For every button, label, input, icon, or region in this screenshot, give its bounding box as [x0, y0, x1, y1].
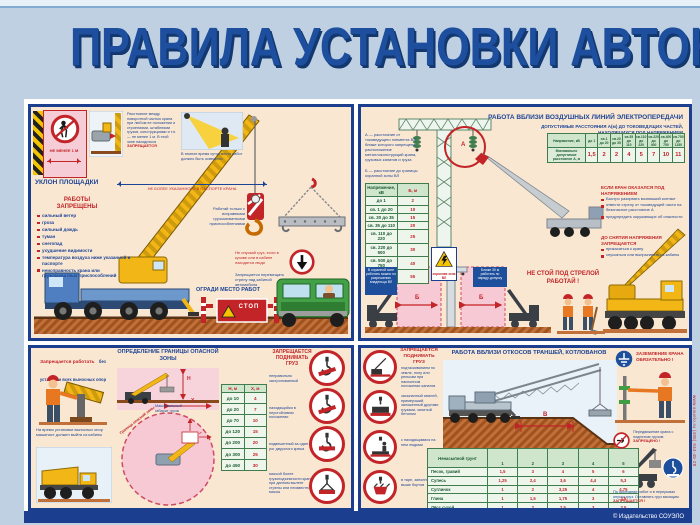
table-header: св.35 до 110 — [623, 134, 635, 148]
table-cell: св. 220 до 500 — [366, 243, 398, 256]
guard-zone-sign-caption: охранная зона ВЛ — [432, 273, 456, 281]
table-cell: 10 — [660, 148, 672, 163]
table-cell: 25 — [397, 230, 429, 243]
footer-bar: © Издательство СОУЭЛО — [24, 511, 692, 523]
b-mark-right: Б — [479, 295, 483, 302]
a-mark-label: А — [461, 142, 465, 149]
slogan-line2: РАБОТАЙ ! — [513, 279, 613, 286]
panel-trench-work: ЗАПРЕЩАЕТСЯ ПОДНИМАТЬ ГРУЗ подтаскивание… — [358, 345, 692, 511]
rigging-note: Работай только с исправными грузозахватн… — [207, 207, 245, 227]
clearance-zone-box: НЕ МЕНЕЕ 1 М — [43, 110, 87, 178]
no-overfilled-sign — [363, 470, 397, 504]
night-work-caption: В темное время суток место работ должно … — [181, 152, 243, 161]
table-cell: 15 — [244, 426, 267, 437]
hook-block — [247, 193, 264, 234]
no-lift-caption-1: неправильно застропованный — [269, 374, 313, 383]
min-distance-label: НЕ МЕНЕЕ 1 М — [45, 149, 83, 154]
min-distance-arrow — [47, 161, 81, 162]
definition-a: А — расстояние от токоведущего элемента … — [365, 133, 423, 162]
safety-poster: ПРАВИЛА УСТАНОВКИ АВТОКРАНОВ — [0, 0, 700, 525]
lowering-note: Не опускай груз, если в кузове или в каб… — [235, 251, 285, 266]
table-header: 3 — [548, 449, 578, 468]
table-cell: до 200 — [222, 437, 245, 448]
table-cell: до 1 — [366, 197, 398, 205]
fence-label: ОГРАДИ МЕСТО РАБОТ — [191, 287, 265, 294]
list-item: снегопад — [37, 241, 133, 247]
table-cell: до 70 — [222, 415, 245, 426]
table-cell: 5 — [635, 148, 647, 163]
table-cell: Суглинок — [428, 485, 488, 494]
table-cell: 2 — [518, 485, 548, 494]
table-cell: 5 — [578, 468, 608, 477]
table-cell: 30 — [244, 460, 267, 471]
table-header: 5 — [608, 449, 638, 468]
no-people-sign — [363, 430, 397, 464]
grounding-label: ЗАЗЕМЛЕНИЕ КРАНА ОБЯЗАТЕЛЬНО ! — [636, 351, 686, 362]
table-cell: св. 20 до 35 — [366, 213, 398, 221]
table-cell: Лёсс сухой — [428, 503, 488, 511]
table-cell: Глина — [428, 494, 488, 503]
no-lift-sign-1 — [309, 350, 345, 386]
table-cell: 4 — [623, 148, 635, 163]
table-cell: 4 — [548, 468, 578, 477]
table-cell: 10 — [397, 205, 429, 213]
table-cell: 3,6 — [548, 476, 578, 485]
energized-list: Быстро разорвать возникший контактотвест… — [601, 197, 685, 221]
slogan-line1: НЕ СТОЙ ПОД СТРЕЛОЙ — [513, 271, 613, 278]
outrigger-note: На время установки выносных опор машинис… — [36, 428, 110, 438]
end-of-work-note: По окончании работ и в перерывах опусти … — [613, 490, 685, 504]
no-buried-sign — [363, 390, 397, 424]
table-header: св.20 до 35 — [610, 134, 622, 148]
dragging-load-icon — [369, 356, 392, 379]
table-cell: 10 — [244, 415, 267, 426]
no-travel-note: Передвижение крана с поднятым грузом ЗАП… — [633, 430, 685, 444]
table-cell: 4,4 — [578, 476, 608, 485]
no-lift-title-2: ЗАПРЕЩАЕТСЯ ПОДНИМАТЬ ГРУЗ — [399, 348, 439, 365]
no-lift2-caption-1: подтаскиванием по земле, полу или рельса… — [401, 366, 439, 389]
top-stripe-accent — [0, 6, 700, 8]
table-cell: 20 — [397, 222, 429, 230]
table-cell: 1 — [488, 494, 518, 503]
table-cell: 3 — [518, 468, 548, 477]
table-cell: Минимально допустимое расстояние А, м — [548, 148, 586, 163]
table-cell: 2 — [518, 503, 548, 511]
approaching-crane — [475, 153, 603, 237]
table-cell: 40 — [397, 257, 429, 270]
table-cell: 6 — [608, 468, 638, 477]
trench-panel-title: РАБОТА ВБЛИЗИ ОТКОСОВ ТРАНШЕЙ, КОТЛОВАНО… — [441, 350, 617, 357]
table-cell: 2 — [610, 148, 622, 163]
hook-load-icon — [315, 394, 339, 418]
table-cell: 2 — [598, 148, 610, 163]
no-lift-caption-3: подвешенный за один рог двурогого крюка — [269, 442, 313, 451]
danger-zone-title: ОПРЕДЕЛЕНИЕ ГРАНИЦЫ ОПАСНОЙ ЗОНЫ — [117, 349, 219, 362]
people-on-load-icon — [369, 436, 392, 459]
table-cell: 4 — [578, 485, 608, 494]
stop-sign-label: СТОП — [233, 304, 265, 311]
table-cell: 7 — [647, 148, 659, 163]
overfilled-container-icon — [369, 476, 392, 499]
table-header: 4 — [578, 449, 608, 468]
grounding-worker-pic — [615, 372, 685, 423]
spreader-beam — [279, 179, 345, 231]
list-item: спускаться или выпрыгивать из кабины — [601, 253, 685, 258]
zone-permit-note-right: Ближе 30 м работать по наряду-допуску — [473, 267, 507, 287]
lower-load-sign-icon — [289, 249, 315, 275]
until-deenergized-title: ДО СНЯТИЯ НАПРЯЖЕНИЯ ЗАПРЕЩАЕТСЯ — [601, 235, 685, 246]
table-cell: Супесь — [428, 476, 488, 485]
table-cell: 1 — [488, 485, 518, 494]
dump-truck-pic — [36, 447, 112, 503]
table-cell: 3 — [578, 494, 608, 503]
table-cell: до 10 — [222, 393, 245, 404]
panel-danger-zone: Запрещается работать без установки всех … — [28, 345, 354, 511]
table-header: Н, м — [222, 385, 245, 393]
table-header: Б, м — [397, 184, 429, 197]
table-header: св.110 до 220 — [635, 134, 647, 148]
list-item: Быстро разорвать возникший контакт — [601, 197, 685, 202]
table-header: 1 — [488, 449, 518, 468]
workers-figures — [557, 294, 605, 335]
list-item: сильный ветер — [37, 213, 133, 219]
poster-title: ПРАВИЛА УСТАНОВКИ АВТОКРАНОВ — [70, 16, 630, 78]
table-cell: 3 — [578, 503, 608, 511]
boom-over-cab-note: Запрещается перемещать стрелу над кабино… — [235, 273, 287, 288]
list-item: гроза — [37, 220, 133, 226]
zone-permit-note-left: В охранной зоне работать можно по разреш… — [365, 267, 397, 295]
table-cell: 1,5 — [488, 468, 518, 477]
slope-label: УКЛОН ПЛОЩАДКИ — [35, 179, 115, 187]
panel-power-lines: РАБОТА ВБЛИЗИ ВОЗДУШНЫХ ЛИНИЙ ЭЛЕКТРОПЕР… — [358, 104, 692, 341]
no-lift-sign-3 — [309, 426, 345, 462]
ground-strip — [34, 319, 348, 334]
lower-load-blue-sign — [663, 458, 683, 478]
wall-hatch — [33, 111, 43, 175]
forbidden-works-title: РАБОТЫ ЗАПРЕЩЕНЫ — [49, 197, 105, 211]
list-item: предупредить окружающих об опасности — [601, 215, 685, 220]
table-header: св.220 до 400 — [647, 134, 659, 148]
list-item: неисправность крана или грузозахватных п… — [37, 268, 133, 279]
max-load-size-label: Максимальный габарит груза — [155, 404, 195, 413]
until-deenergized-list: прикасаться к крануспускаться или выпрыг… — [601, 247, 685, 260]
definition-b: Б — расстояние до границы охранной зоны … — [365, 169, 423, 179]
table-cell: св. 110 до 220 — [366, 230, 398, 243]
voltage-distance-table: Напряжение, кВдо 1св.1 до 20св.20 до 35с… — [547, 133, 685, 163]
table-cell: 5,3 — [608, 476, 638, 485]
no-lift-title: ЗАПРЕЩАЕТСЯ ПОДНИМАТЬ ГРУЗ — [269, 349, 315, 367]
table-cell: 1,5 — [586, 148, 598, 163]
table-header: X, м — [244, 385, 267, 393]
table-header: Напряжение, кВ — [366, 184, 398, 197]
table-cell: 2 — [397, 197, 429, 205]
no-lift2-caption-2: засыпанный землей, примерзший, заложенны… — [401, 394, 439, 417]
table-header: Ненасыпной грунт — [428, 449, 488, 468]
zone-distance-table: Н, мX, мдо 104до 207до 7010до 12015до 20… — [221, 384, 267, 471]
poster-header: ПРАВИЛА УСТАНОВКИ АВТОКРАНОВ — [0, 16, 700, 78]
table-cell: 1,75 — [548, 494, 578, 503]
table-cell: 4 — [244, 393, 267, 404]
no-lift-caption-2: находящийся в неустойчивом положении — [269, 406, 313, 420]
table-cell: 15 — [397, 213, 429, 221]
list-item: сильный дождь — [37, 227, 133, 233]
night-work-pic — [181, 112, 243, 150]
no-drag-sign — [363, 350, 397, 384]
outrigger-worker-pic — [37, 374, 109, 426]
table-cell: Песок, гравий — [428, 468, 488, 477]
table-cell: 1,25 — [488, 476, 518, 485]
table-cell: 11 — [672, 148, 684, 163]
list-item: ухудшение видимости — [37, 248, 133, 254]
hook-load-icon — [315, 356, 339, 380]
no-travel-with-load-icon — [613, 432, 630, 449]
publisher-label: © Издательство СОУЭЛО — [613, 514, 684, 520]
list-item: прикасаться к крану — [601, 247, 685, 252]
high-voltage-icon — [434, 250, 454, 268]
hook-load-icon — [315, 432, 339, 456]
table-cell: 2,5 — [548, 503, 578, 511]
table-cell: св. 35 до 110 — [366, 222, 398, 230]
table-cell: 30 — [397, 243, 429, 256]
guard-zone-sign: охранная зона ВЛ — [431, 247, 457, 281]
grounding-icon — [615, 350, 633, 368]
table-cell: до 450 — [222, 460, 245, 471]
power-panel-title: РАБОТА ВБЛИЗИ ВОЗДУШНЫХ ЛИНИЙ ЭЛЕКТРОПЕР… — [431, 114, 683, 122]
hook-unknown-load-icon — [315, 474, 339, 498]
forbidden-works-list: сильный ветергрозасильный дождьтуманснег… — [37, 213, 133, 280]
clearance-note: Расстояние между поворотной частью крана… — [127, 112, 177, 149]
table-header: св.400 до 750 — [660, 134, 672, 148]
trench-distance-table: Ненасыпной грунт12345Песок, гравий1,5345… — [427, 448, 639, 511]
table-header: Напряжение, кВ — [548, 134, 586, 148]
panel-site-setup: НЕ МЕНЕЕ 1 М Расстояние между поворотной… — [28, 104, 354, 341]
list-item: температура воздуха ниже указанной в пас… — [37, 255, 133, 266]
table-cell: 1 — [488, 503, 518, 511]
slope-arrow — [117, 184, 267, 185]
list-item: туман — [37, 234, 133, 240]
table-cell: 20 — [244, 437, 267, 448]
no-lift-sign-4 — [309, 468, 345, 504]
table-cell: 3,25 — [548, 485, 578, 494]
h-mark-label: Н — [187, 376, 191, 382]
table-cell: св. 1 до 20 — [366, 205, 398, 213]
list-item: отвести стрелу от токоведущей части на б… — [601, 203, 685, 213]
power-panel-subtitle1: ДОПУСТИМЫЕ РАССТОЯНИЯ А(м) ДО ТОКОВЕДУЩИ… — [469, 124, 683, 130]
no-lift-caption-4: массой более грузоподъемности крана при … — [269, 472, 313, 495]
slope-note: НЕ БОЛЕЕ УКАЗАННОГО В ПАСПОРТЕ КРАНА — [127, 187, 257, 192]
v-mark-label: В — [543, 412, 547, 419]
buried-load-icon — [369, 396, 392, 419]
table-header: 2 — [518, 449, 548, 468]
b-mark-left: Б — [415, 295, 419, 302]
table-header: св.750 до 1150 — [672, 134, 684, 148]
table-cell: до 120 — [222, 426, 245, 437]
table-cell: 1,5 — [518, 494, 548, 503]
energized-title: ЕСЛИ КРАН ОКАЗАЛСЯ ПОД НАПРЯЖЕНИЕМ — [601, 185, 685, 196]
table-header: св.1 до 20 — [598, 134, 610, 148]
no-pedestrian-icon — [50, 114, 80, 144]
table-cell: 3,5 — [608, 503, 638, 511]
table-cell: 7 — [244, 404, 267, 415]
turret-clearance-pic — [89, 111, 123, 157]
table-header: до 1 — [586, 134, 598, 148]
table-cell: до 300 — [222, 448, 245, 459]
table-cell: 55 — [397, 270, 429, 283]
website-label: www.souelo.ru (495) 944-45-28 — [692, 395, 697, 507]
table-cell: до 20 — [222, 404, 245, 415]
no-lift2-caption-3: с находящимися на нем людьми — [401, 438, 439, 447]
no-lift-sign-2 — [309, 388, 345, 424]
table-cell: 25 — [244, 448, 267, 459]
table-cell: 2,4 — [518, 476, 548, 485]
